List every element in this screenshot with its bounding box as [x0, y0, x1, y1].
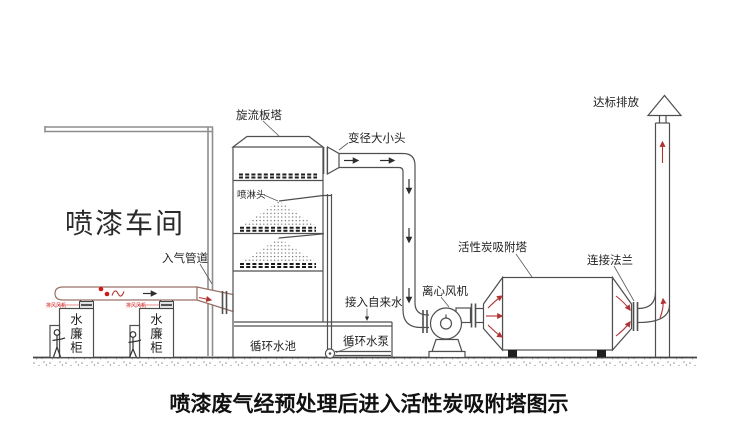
tap-water-label: 接入自来水 [345, 296, 403, 309]
vessel-body [503, 278, 613, 351]
diagram-caption: 喷漆废气经预处理后进入活性炭吸附塔图示 [170, 392, 569, 416]
cabinet-label-char: 廉 [70, 326, 83, 341]
reducer-label: 变径大小头 [348, 131, 406, 145]
inlet-duct-label: 入气管道 [162, 251, 208, 265]
spray-cone [242, 238, 316, 262]
flow-arrow-red [660, 299, 663, 318]
carbon-adsorption-tower: 活性炭吸附塔 连接法兰 [458, 240, 638, 357]
cabinet-fan-label: 排风风机 [126, 302, 146, 309]
spray-cone [242, 201, 316, 226]
spray-head-label: 喷淋头 [237, 189, 266, 201]
carbon-tower-leader [516, 254, 532, 277]
ground [33, 358, 697, 367]
pool-label: 循环水池 [250, 340, 296, 353]
cabinet-label-char: 柜 [70, 341, 83, 355]
duct-sloped [197, 287, 233, 312]
pump-label: 循环水泵 [343, 335, 389, 348]
fan-label-leader [441, 297, 449, 307]
pipe-outer [339, 154, 429, 316]
discharge-label: 达标排放 [593, 95, 639, 109]
pipe-elbow-inner [638, 292, 656, 309]
fan-hub [441, 318, 452, 329]
tower-label: 旋流板塔 [236, 108, 282, 122]
tower-roof [233, 137, 323, 148]
red-dot [105, 292, 110, 297]
workshop-title: 喷漆车间 [65, 208, 185, 240]
vessel-foot [597, 350, 606, 357]
centrifugal-fan: 离心风机 [422, 284, 484, 358]
red-dot [99, 287, 104, 292]
process-diagram: 喷漆车间 水 廉 柜 排风风机 水 廉 柜 排风风机 [0, 0, 732, 431]
fan-pedestal [432, 340, 462, 352]
diagram-canvas: 喷漆车间 水 廉 柜 排风风机 水 廉 柜 排风风机 [0, 0, 732, 431]
vessel-left-cone [484, 278, 503, 351]
cabinet-label-char: 柜 [150, 341, 163, 355]
vessel-right-cone [613, 278, 632, 351]
water-curtain-cabinet-1: 水 廉 柜 排风风机 [46, 302, 94, 358]
pump-hub [329, 352, 332, 355]
ground-texture [33, 359, 697, 367]
vessel-foot [508, 350, 517, 357]
cabinet-label-char: 水 [150, 313, 163, 327]
tower-label-leader [263, 121, 279, 136]
centrifugal-fan-label: 离心风机 [422, 284, 468, 298]
reducer-cone [328, 147, 340, 174]
spray-supply-line [279, 196, 332, 202]
rain-cap [648, 96, 681, 116]
reducer-leader [339, 143, 348, 150]
spray-head-leader [264, 195, 278, 201]
cabinet-label-char: 水 [70, 313, 83, 327]
inlet-duct-leader [200, 264, 212, 284]
fan-base [429, 352, 465, 358]
carbon-tower-label: 活性炭吸附塔 [458, 240, 527, 254]
flange-label: 连接法兰 [587, 253, 633, 267]
scrubber-tower: 旋流板塔 喷淋头 [233, 108, 332, 357]
spray-supply-line [279, 234, 324, 238]
circulating-water: 循环水池 循环水泵 接入自来水 [234, 296, 403, 358]
cabinet-label-char: 廉 [150, 326, 163, 341]
duct-horizontal [55, 287, 197, 300]
cabinet-fan-label: 排风风机 [46, 302, 66, 309]
